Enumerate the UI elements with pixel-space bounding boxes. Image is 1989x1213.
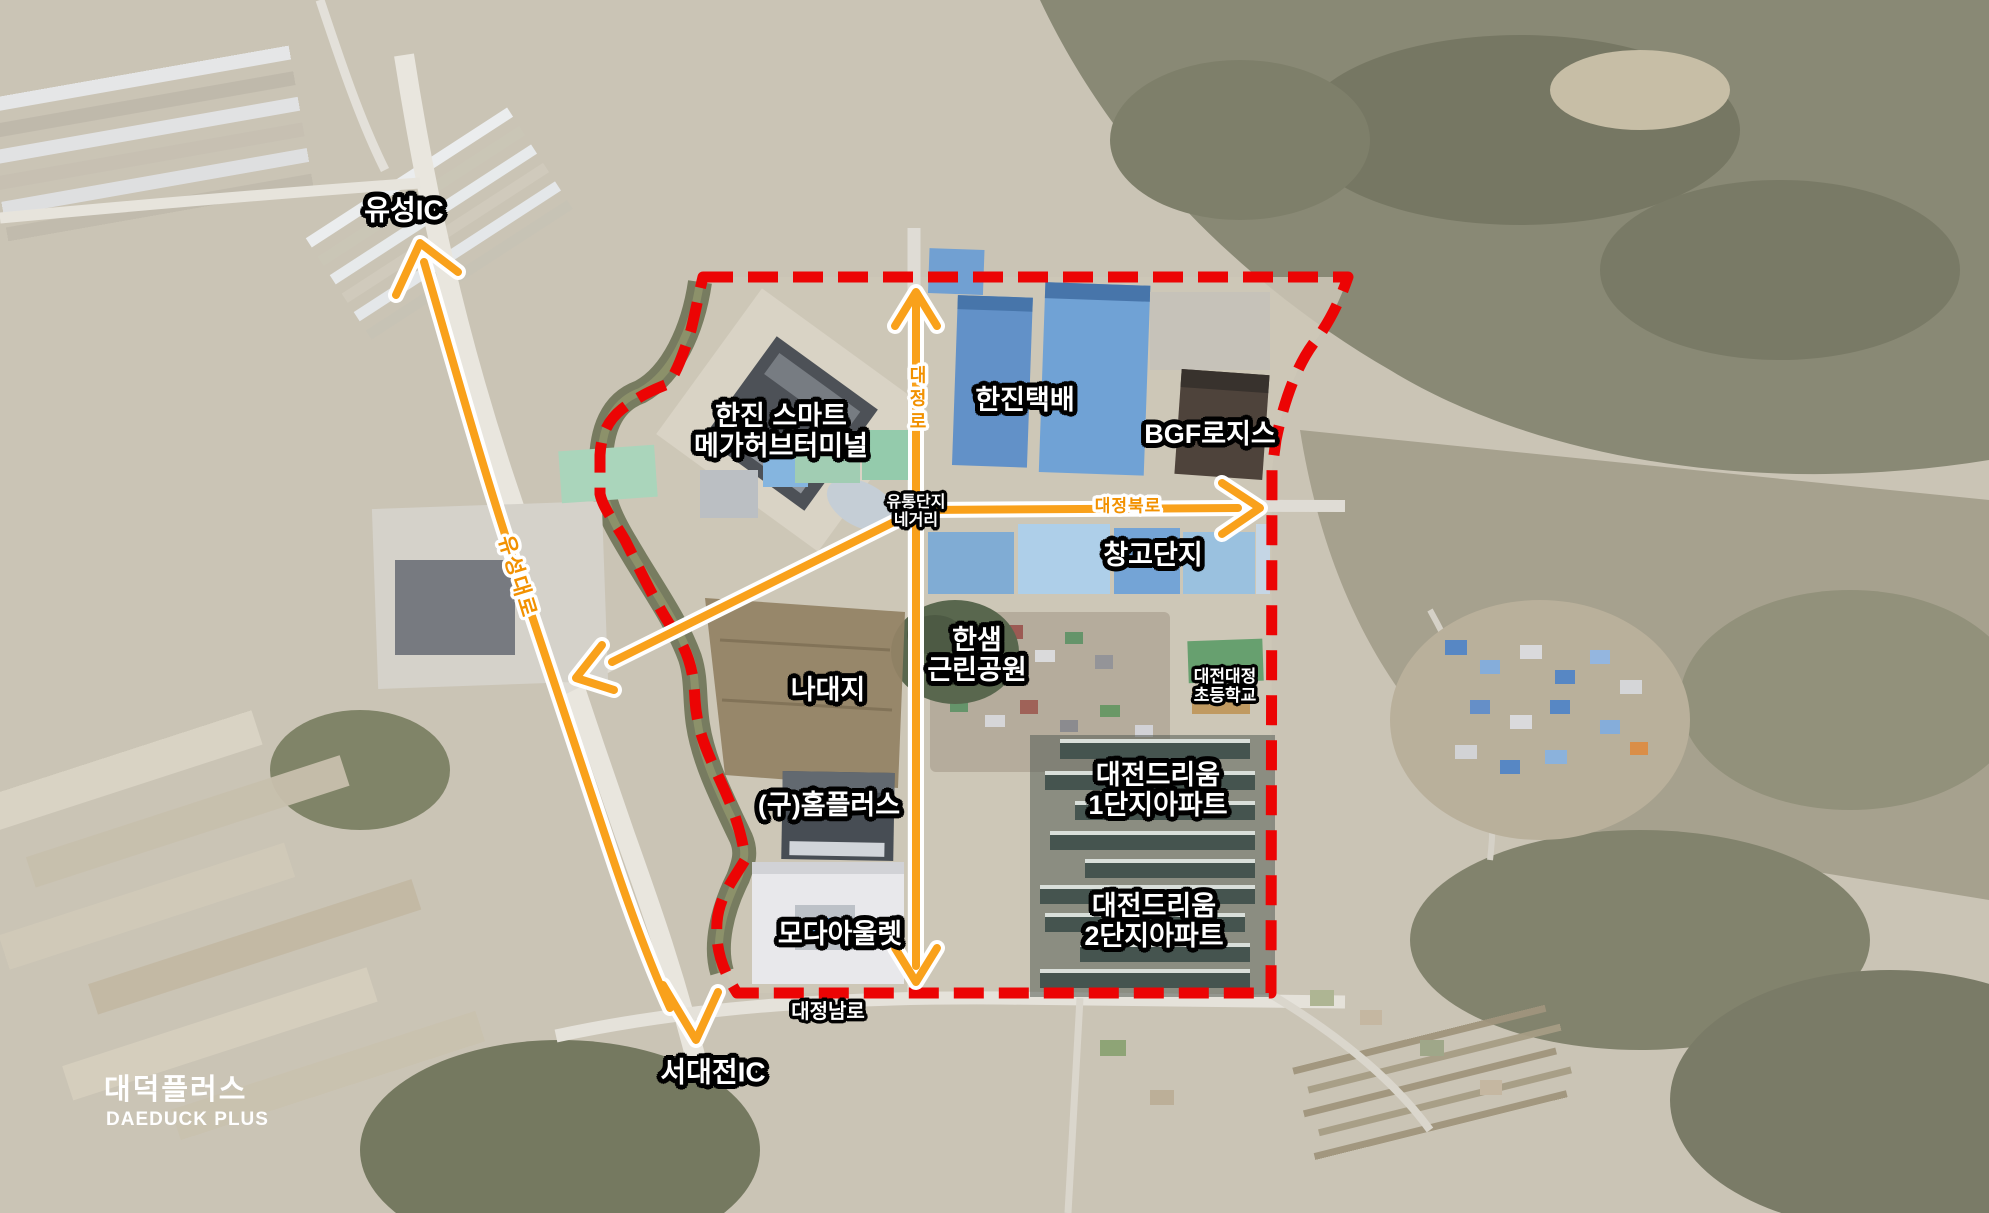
daeduck-plus-logo-korean: 대덕플러스 (104, 1076, 247, 1105)
label-hansaem-park: 한샘 근린공원 (927, 625, 1026, 685)
label-hanjin-terminal-line2: 메가허브터미널 (694, 431, 868, 461)
label-yuseong-ic: 유성IC (364, 194, 444, 225)
label-hansaem-park-line1: 한샘 (927, 625, 1026, 655)
label-dreamium1: 대전드리움 1단지아파트 (1088, 760, 1227, 820)
label-daejeong-namro: 대정남로 (791, 1001, 865, 1023)
label-hansaem-park-line2: 근린공원 (927, 655, 1026, 685)
daeduck-plus-logo-english: DAEDUCK PLUS (106, 1110, 269, 1129)
label-distribution-intersection-line2: 네거리 (887, 512, 946, 530)
label-daejeong-bukro: 대정북로 (1095, 496, 1162, 515)
label-former-homeplus: (구)홈플러스 (758, 790, 900, 820)
label-distribution-intersection-line1: 유통단지 (887, 494, 946, 512)
label-hanjin-terminal: 한진 스마트 메가허브터미널 (694, 401, 868, 461)
label-moda-outlet: 모다아울렛 (778, 919, 902, 949)
label-seodaejeon-ic: 서대전IC (660, 1056, 765, 1087)
daejeongbukro-arrow (924, 483, 1260, 534)
label-dreamium2: 대전드리움 2단지아파트 (1084, 891, 1223, 951)
annotation-overlay (0, 0, 1989, 1213)
satellite-map: 유성IC 한진 스마트 메가허브터미널 한진택배 BGF로지스 창고단지 유통단… (0, 0, 1989, 1213)
label-bgf-logis: BGF로지스 (1144, 419, 1276, 449)
label-warehouse-complex: 창고단지 (1103, 540, 1202, 570)
label-distribution-intersection: 유통단지 네거리 (887, 494, 946, 530)
label-vacant-land: 나대지 (791, 675, 866, 705)
label-dreamium2-line1: 대전드리움 (1084, 891, 1223, 921)
label-dreamium2-line2: 2단지아파트 (1084, 921, 1223, 951)
label-daejeong-ro: 대정로 (907, 366, 927, 435)
label-elementary-school: 대전대정 초등학교 (1194, 667, 1257, 705)
label-elementary-school-line1: 대전대정 (1194, 667, 1257, 686)
label-dreamium1-line1: 대전드리움 (1088, 760, 1227, 790)
label-dreamium1-line2: 1단지아파트 (1088, 790, 1227, 820)
label-hanjin-terminal-line1: 한진 스마트 (694, 401, 868, 431)
label-elementary-school-line2: 초등학교 (1194, 686, 1257, 705)
label-hanjin-parcel: 한진택배 (975, 385, 1074, 415)
